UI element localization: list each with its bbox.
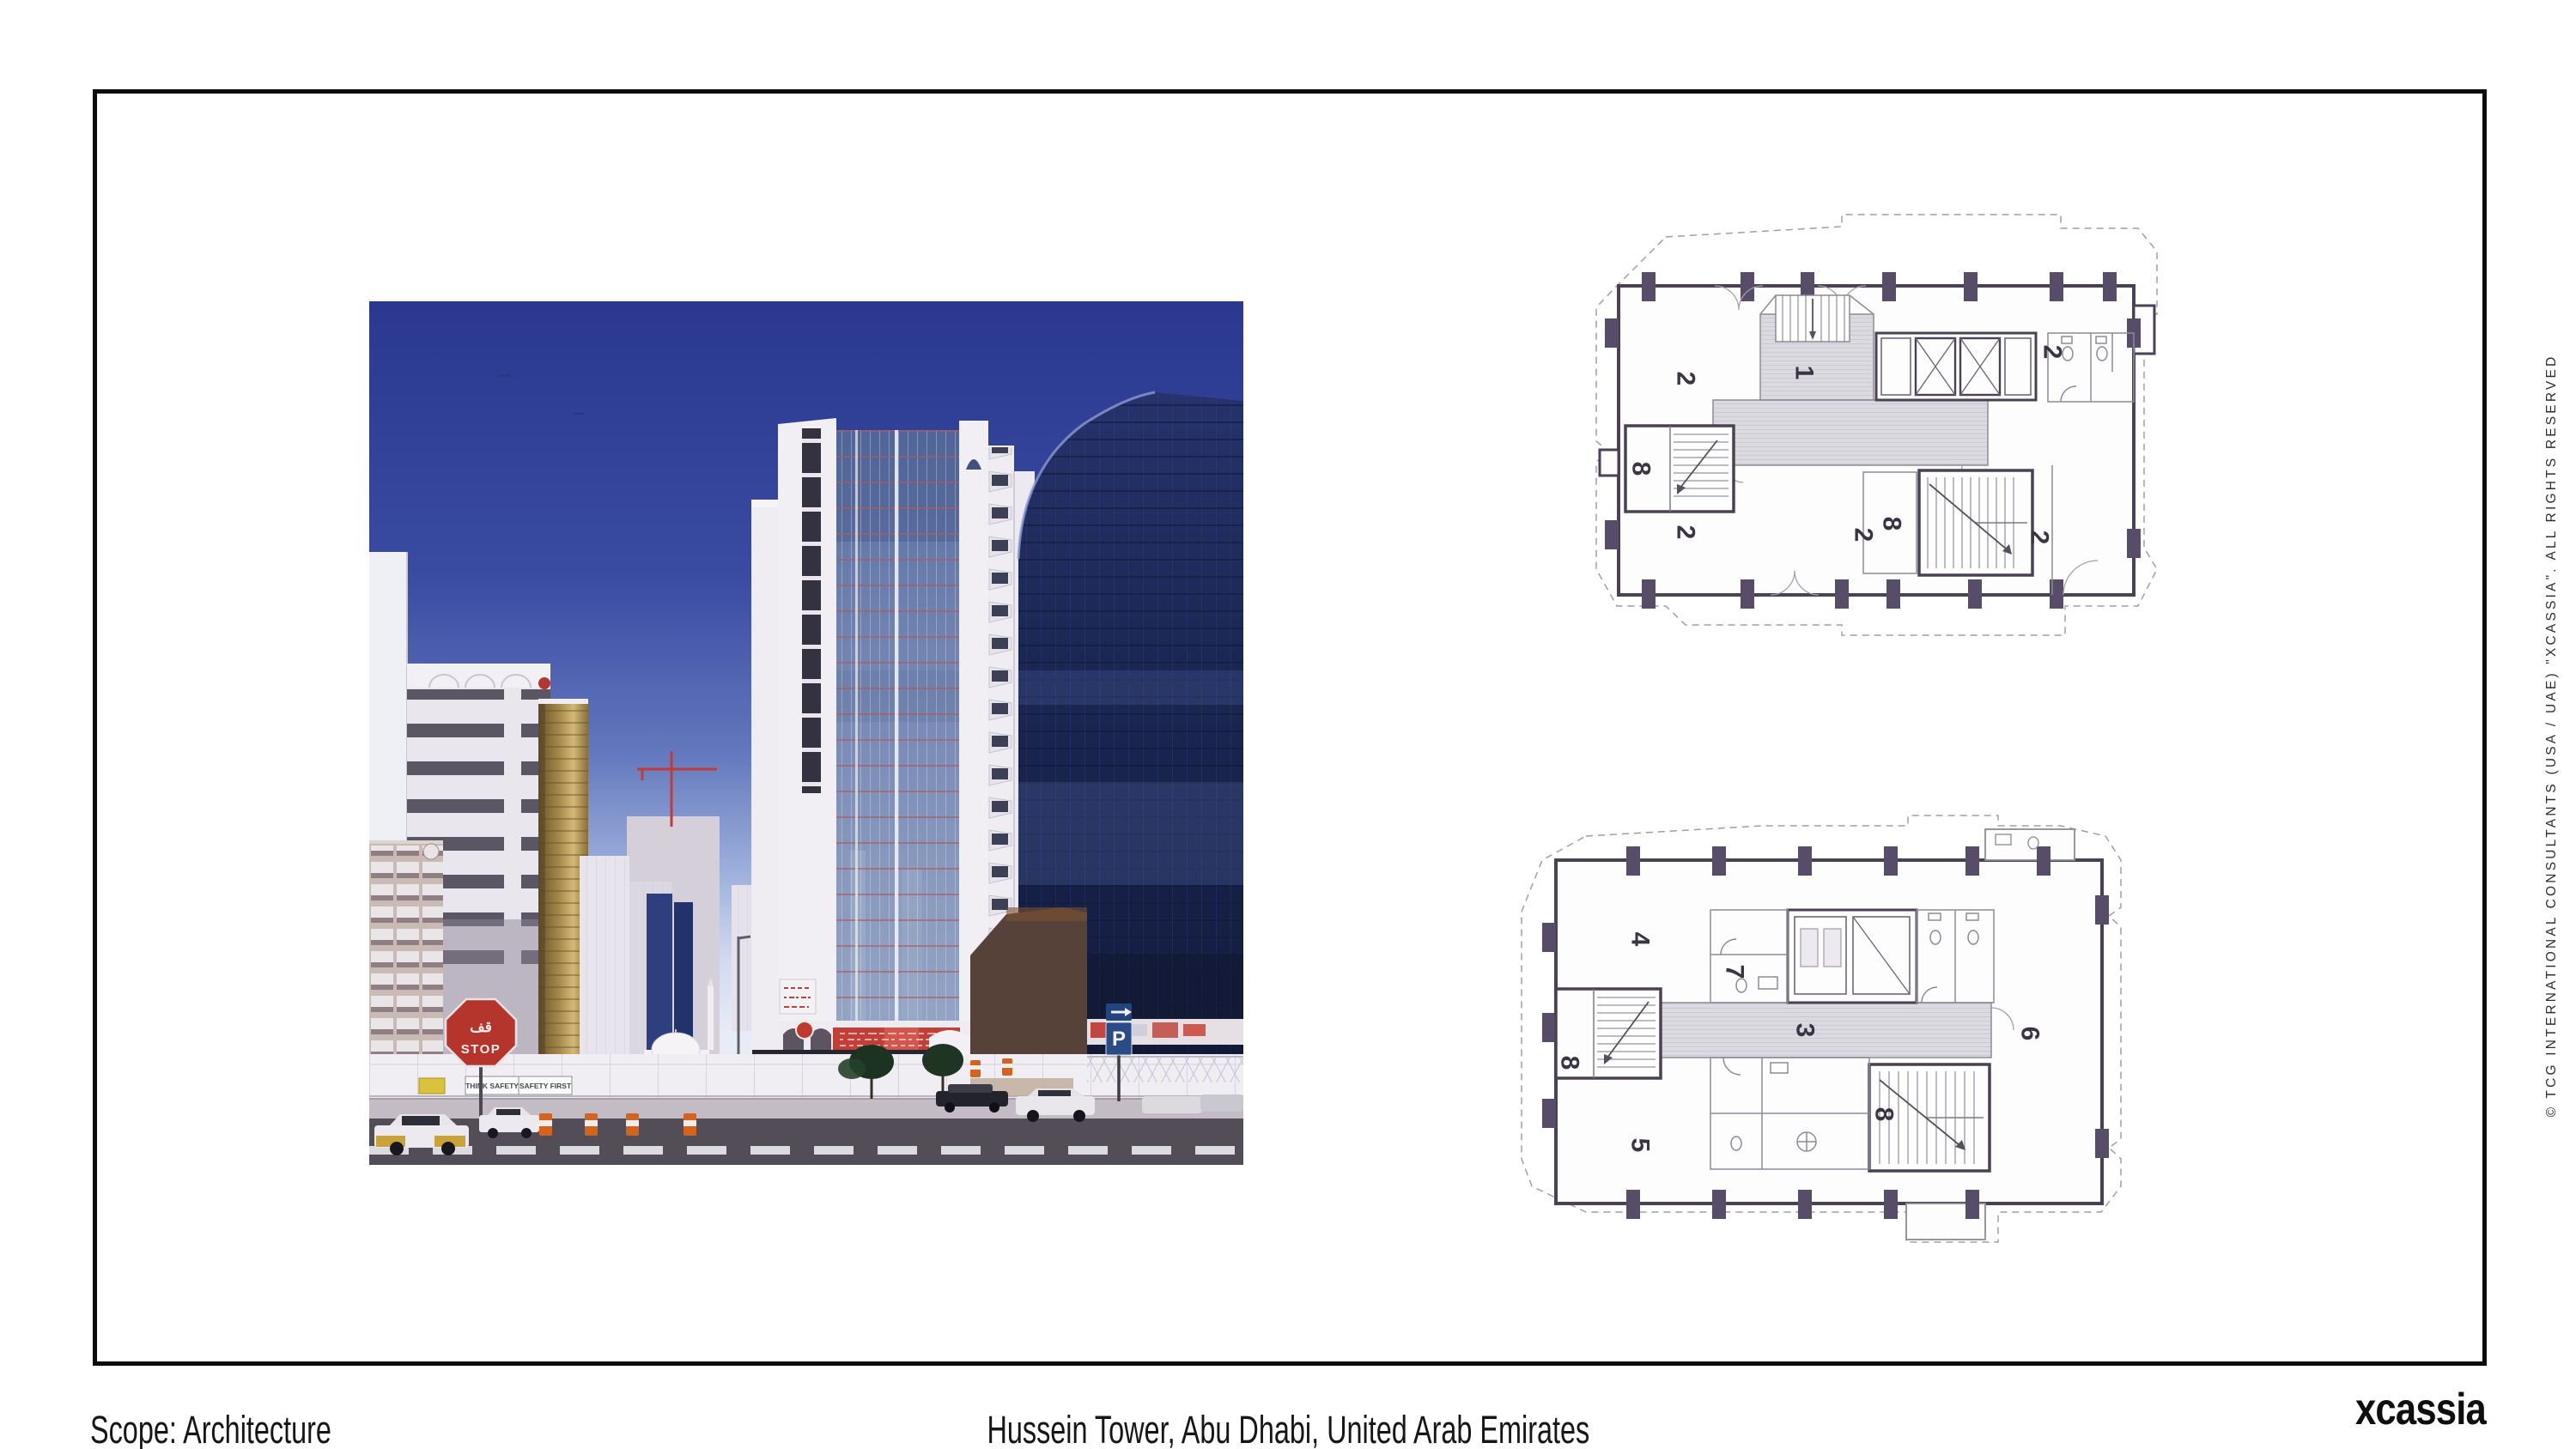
parked-car: [1142, 1096, 1202, 1113]
safety-banner-left-text: THINK SAFETY: [465, 1082, 519, 1090]
room-label: 8: [1870, 1107, 1899, 1122]
room-label: 1: [1790, 366, 1819, 380]
stop-sign-english: STOP: [461, 1042, 501, 1057]
room-label: 2: [1672, 372, 1700, 386]
room-label: 2: [2038, 345, 2067, 360]
company-logo-text: xcassia: [2355, 1384, 2486, 1435]
plan-elevator-bank: [1876, 333, 2036, 400]
satellite-dish: [423, 844, 439, 859]
plan-elevators: [1788, 910, 1917, 1003]
portfolio-page: FEDERAL: [0, 0, 2576, 1449]
room-label: 8: [1878, 517, 1906, 531]
plan-lobby-corridor: [1713, 400, 1988, 465]
stop-sign-arabic: قف: [470, 1019, 492, 1035]
room-label: 8: [1556, 1056, 1584, 1070]
footer-project-title: Hussein Tower, Abu Dhabi, United Arab Em…: [0, 1408, 2576, 1449]
building-logo-dot: [538, 677, 550, 689]
parking-sign-letter: P: [1112, 1028, 1126, 1051]
tower-left-wing: [751, 500, 778, 1058]
crowd-barriers: [1087, 1057, 1243, 1082]
yellow-notice-sign: [419, 1078, 445, 1094]
safety-banner-right-text: SAFETY FIRST: [519, 1082, 572, 1090]
round-logo: [796, 1022, 813, 1039]
room-label: 5: [1626, 1138, 1655, 1153]
room-label: 2: [1672, 525, 1700, 540]
floor-plan-upper: 2 2 1 8 8 2 2 2: [1584, 204, 2168, 659]
photo-illustration: FEDERAL: [369, 301, 1243, 1165]
room-label: 6: [2016, 1027, 2044, 1041]
room-label: 7: [1721, 965, 1749, 979]
building-photograph: FEDERAL: [369, 301, 1243, 1165]
company-logo: xcassia: [2330, 1384, 2486, 1435]
parked-car: [1200, 1094, 1243, 1112]
room-label: 3: [1791, 1023, 1820, 1038]
footer-project-title-text: Hussein Tower, Abu Dhabi, United Arab Em…: [987, 1408, 1589, 1449]
room-label: 2: [2026, 530, 2054, 545]
vertical-copyright-text: © TCG INTERNATIONAL CONSULTANTS (USA / U…: [2544, 355, 2560, 1118]
room-label: 2: [1850, 528, 1878, 543]
floor-plan-lower: 4 7 3 6 5 8 8: [1504, 809, 2140, 1259]
room-label: 4: [1626, 932, 1655, 947]
road-markings: [369, 1146, 1243, 1155]
room-label: 8: [1627, 462, 1656, 476]
